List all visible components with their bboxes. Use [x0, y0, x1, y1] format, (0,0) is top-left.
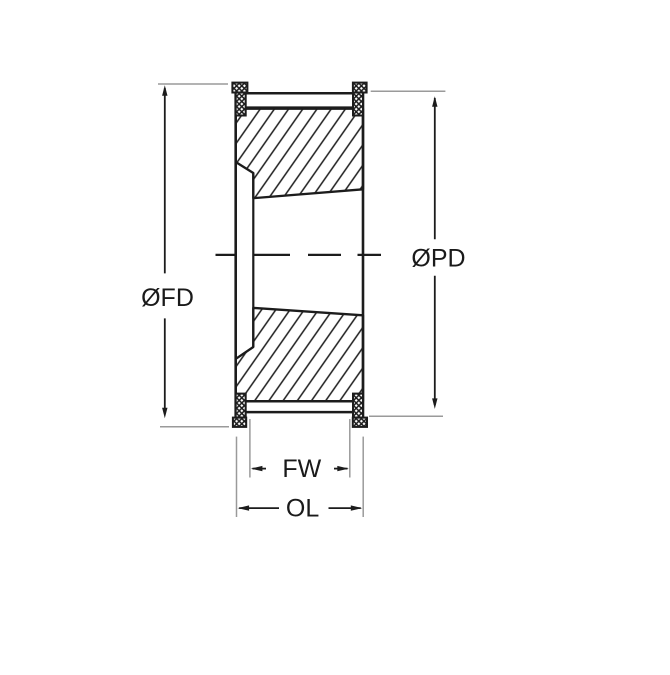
svg-text:OL: OL	[286, 495, 319, 523]
svg-text:ØPD: ØPD	[411, 245, 465, 273]
svg-text:ØFD: ØFD	[141, 284, 194, 312]
svg-text:FW: FW	[282, 455, 321, 483]
